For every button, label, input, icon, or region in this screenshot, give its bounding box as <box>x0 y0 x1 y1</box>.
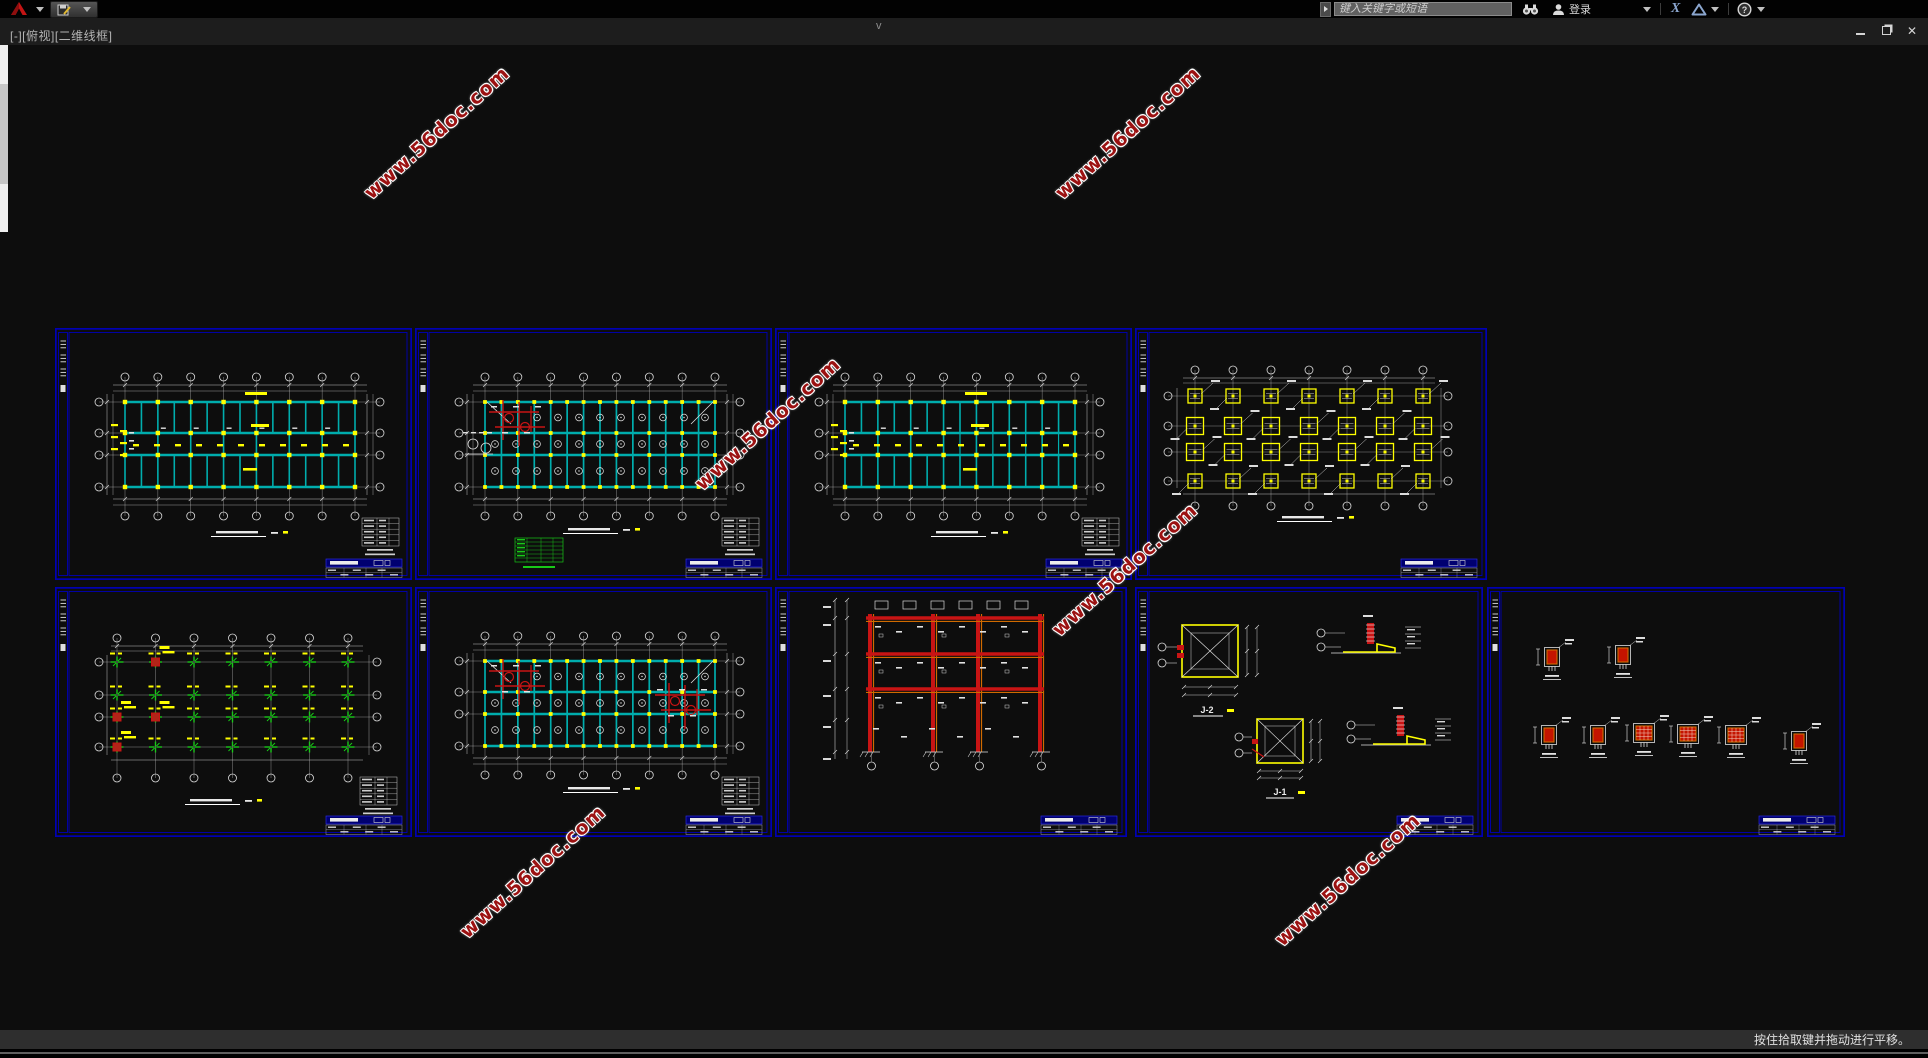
status-bar: 按住拾取键并拖动进行平移。 <box>0 1030 1928 1049</box>
autodesk360-dropdown-arrow-icon[interactable] <box>1711 7 1719 12</box>
panel-foundation-details: J-2J-1 <box>1135 587 1483 837</box>
window-bottom-edge <box>0 1052 1928 1054</box>
minimize-button[interactable] <box>1852 24 1868 37</box>
svg-text:J-1: J-1 <box>1273 787 1286 797</box>
logo-dropdown-arrow-icon[interactable] <box>36 7 44 12</box>
document-window-buttons: ✕ <box>1852 24 1920 37</box>
left-edge-scrollbar[interactable] <box>0 42 8 232</box>
restore-button[interactable] <box>1878 24 1894 37</box>
close-button[interactable]: ✕ <box>1904 24 1920 37</box>
panel-slab-reinforcement-plan-2 <box>415 587 772 837</box>
panel-foundation-layout-plan <box>1135 328 1487 580</box>
infocenter-collapse-icon[interactable] <box>1320 2 1331 17</box>
user-icon[interactable] <box>1552 3 1565 16</box>
signin-dropdown-arrow-icon[interactable] <box>1643 7 1651 12</box>
viewport-label[interactable]: [-][俯视][二维线框] <box>10 27 113 44</box>
drawing-window-bar: [-][俯视][二维线框] v ✕ <box>0 18 1928 45</box>
search-input[interactable] <box>1334 2 1512 16</box>
quick-access-toolbar[interactable] <box>50 1 98 18</box>
infocenter: 登录 X ? <box>1318 0 1765 18</box>
search-binoculars-icon[interactable] <box>1522 3 1539 16</box>
panel-column-layout-plan <box>55 587 412 837</box>
panel-column-section-details <box>1487 587 1845 837</box>
top-center-mark: v <box>876 20 882 32</box>
autocad-logo-icon[interactable] <box>7 1 33 17</box>
svg-text:J-2: J-2 <box>1200 705 1213 715</box>
status-hint: 按住拾取键并拖动进行平移。 <box>1754 1031 1910 1048</box>
title-bar: 登录 X ? <box>0 0 1928 18</box>
help-dropdown-arrow-icon[interactable] <box>1757 7 1765 12</box>
autodesk360-icon[interactable] <box>1691 3 1707 16</box>
autocad-application-window: { "window": { "viewport_label": "[-][俯视]… <box>0 0 1928 1058</box>
qat-dropdown-arrow-icon[interactable] <box>83 7 91 12</box>
panel-beam-reinforcement-plan-1 <box>55 328 412 580</box>
separator <box>1660 3 1661 15</box>
save-icon[interactable] <box>57 3 71 16</box>
separator <box>1728 3 1729 15</box>
help-icon[interactable]: ? <box>1737 2 1752 17</box>
exchange-apps-icon[interactable]: X <box>1671 1 1680 17</box>
sign-in-label[interactable]: 登录 <box>1569 1 1591 17</box>
svg-text:?: ? <box>1742 4 1748 14</box>
